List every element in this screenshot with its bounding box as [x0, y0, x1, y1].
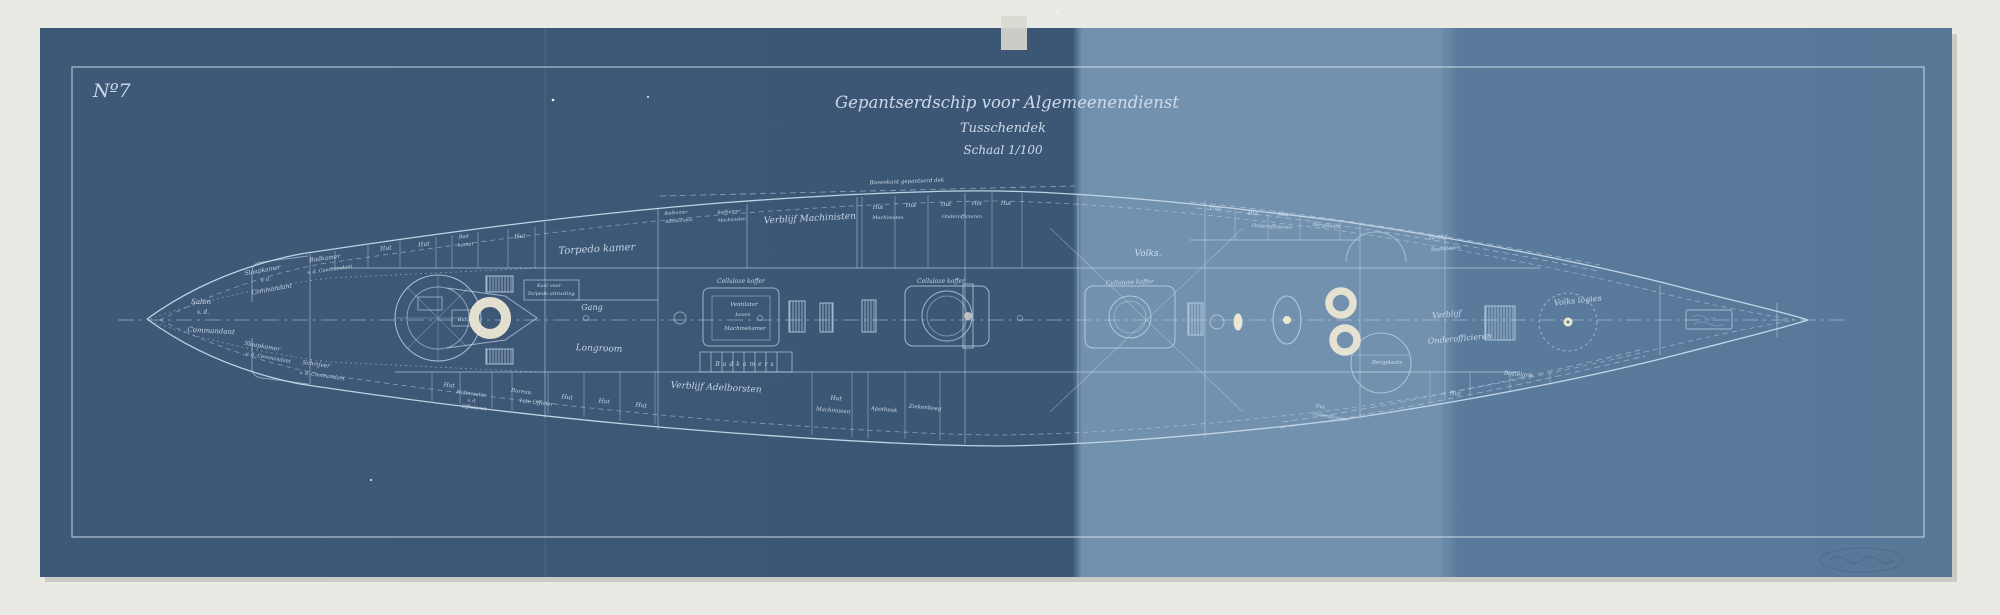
- compartment-label: Hut: [905, 203, 917, 209]
- compartment-label: Hut: [417, 240, 431, 248]
- compartment-label: Hut: [829, 394, 843, 402]
- compartment-label: Bergplaats: [1371, 360, 1402, 366]
- compartment-label: Hut: [513, 232, 527, 240]
- compartment-label: Hut: [457, 317, 467, 323]
- compartment-label: Hut: [379, 244, 393, 252]
- compartment-label: Hut: [1247, 211, 1260, 218]
- compartment-label: v. d.: [197, 309, 209, 316]
- compartment-label: Ventilator: [730, 302, 758, 308]
- compartment-label: Onderofficieren: [942, 214, 982, 220]
- compartment-label: Gang: [581, 303, 602, 312]
- compartment-label: Torpedo uitrusting: [527, 291, 574, 297]
- compartment-label: Celluloze koffer: [717, 278, 766, 285]
- compartment-label: Trap: [1209, 206, 1222, 212]
- compartment-label: Hut: [940, 202, 952, 208]
- compartment-label: Machinekamer: [723, 326, 766, 332]
- compartment-label: Celluloze koffer: [917, 278, 966, 285]
- drawing-number: Nº7: [92, 80, 132, 102]
- scanned-blueprint-page: Nº7 Gepantserdschip voor Algemeenendiens…: [0, 0, 2000, 615]
- compartment-label: Badkamers: [714, 361, 776, 368]
- compartment-label: Longroom: [575, 343, 623, 355]
- compartment-label: Hut: [971, 201, 983, 207]
- title-line-2: Tusschendek: [960, 121, 1046, 136]
- bright-oval: [1234, 314, 1243, 331]
- compartment-label: Bad: [458, 234, 469, 241]
- compartment-label: Hut: [872, 205, 884, 211]
- compartment-label: Hut: [1277, 212, 1290, 219]
- title-line-1: Gepantserdschip voor Algemeenendienst: [835, 93, 1179, 112]
- compartment-label: Kast voor: [536, 283, 562, 289]
- blueprint-scan: Nº7 Gepantserdschip voor Algemeenendiens…: [0, 0, 2000, 615]
- compartment-label: Machinisten: [871, 215, 903, 221]
- compartment-label: boven: [735, 312, 750, 318]
- compartment-label: Salon: [191, 298, 211, 306]
- compartment-label: Volks.: [1135, 249, 1162, 259]
- title-line-3: Schaal 1/100: [963, 143, 1043, 157]
- compartment-label: Hut: [1000, 201, 1012, 207]
- tape-fragment: [1001, 16, 1027, 50]
